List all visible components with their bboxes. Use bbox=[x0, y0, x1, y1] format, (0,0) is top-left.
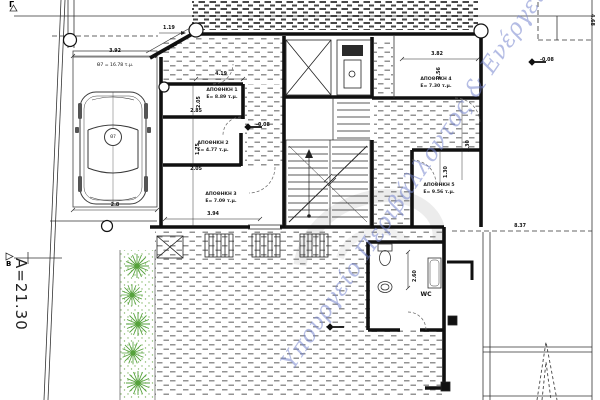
room2-area: Ε= 4.77 τ.μ. bbox=[197, 148, 228, 153]
dim-entry: 1.19 bbox=[163, 26, 175, 31]
parking-area-label: Θ7 = 16.78 τ.μ. bbox=[97, 63, 134, 68]
dim-parking-bottom: 2.8 bbox=[111, 203, 120, 208]
tree-icon bbox=[537, 342, 557, 400]
room3-name: ΑΠΟΘΗΚΗ 3 bbox=[205, 192, 236, 197]
dim-room2-height: 1.75 bbox=[196, 143, 201, 155]
dim-yard: 8.37 bbox=[514, 224, 526, 229]
side-length-label: Α=21.30 bbox=[12, 258, 30, 331]
elevator-machine-icon bbox=[337, 40, 371, 95]
dim-room4-width: 3.82 bbox=[431, 52, 443, 57]
room4-name: ΑΠΟΘΗΚΗ 4 bbox=[420, 77, 451, 82]
parking-stall-id: Θ7 bbox=[110, 135, 116, 139]
gamma-marker: Γ bbox=[9, 1, 14, 10]
room4-area: Ε= 7.30 τ.μ. bbox=[420, 84, 451, 89]
dim-right-side: 4.68 bbox=[589, 14, 594, 26]
elevator-shaft-icon bbox=[286, 40, 331, 95]
room1-name: ΑΠΟΘΗΚΗ 1 bbox=[206, 88, 237, 93]
room5-name: ΑΠΟΘΗΚΗ 5 bbox=[423, 183, 454, 188]
level-right: -0.08 bbox=[540, 58, 554, 63]
dim-wc-height: 2.60 bbox=[413, 270, 418, 282]
dim-landing-a: 3.30 bbox=[466, 140, 471, 152]
dim-room1-inner: 2.85 bbox=[190, 109, 202, 114]
dim-room1-width: 4.19 bbox=[215, 72, 227, 77]
wc-label: WC bbox=[420, 292, 431, 299]
dim-landing-b: 1.30 bbox=[444, 166, 449, 178]
dim-parking-width: 3.92 bbox=[109, 49, 121, 54]
floor-plan-drawing bbox=[0, 0, 600, 400]
car-icon bbox=[75, 92, 151, 204]
floor-plan: Γ Β Α=21.30 Θ7 = 16.78 τ.μ. Θ7 ΑΠΟΘΗΚΗ 1… bbox=[0, 0, 600, 400]
dim-room3-width: 3.94 bbox=[207, 212, 219, 217]
room3-area: Ε= 7.09 τ.μ. bbox=[205, 199, 236, 204]
hatch-areas bbox=[120, 0, 481, 400]
dim-room1-height: 2.05 bbox=[197, 96, 202, 108]
room1-area: Ε= 8.89 τ.μ. bbox=[206, 95, 237, 100]
room2-name: ΑΠΟΘΗΚΗ 2 bbox=[197, 141, 228, 146]
dim-room2-inner: 2.05 bbox=[190, 167, 202, 172]
room5-area: Ε= 9.56 τ.μ. bbox=[423, 190, 454, 195]
dim-room4-height: 2.56 bbox=[437, 67, 442, 79]
level-left: -0.08 bbox=[256, 123, 270, 128]
beta-marker: Β bbox=[6, 261, 11, 269]
